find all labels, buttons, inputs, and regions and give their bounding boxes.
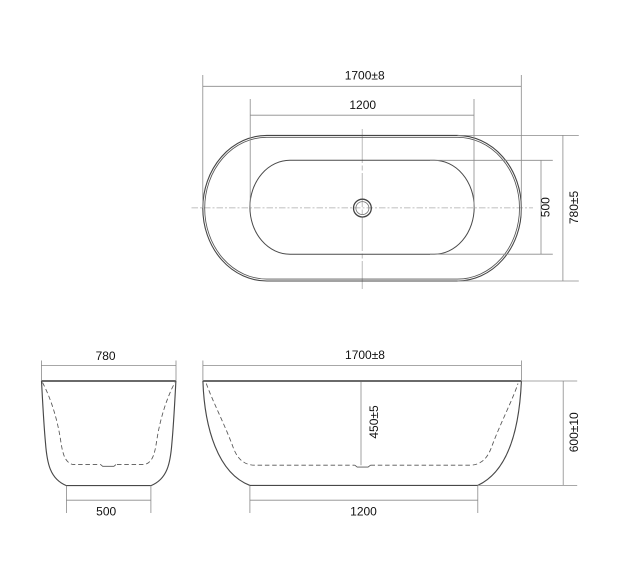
- svg-text:450±5: 450±5: [367, 405, 381, 439]
- svg-text:600±10: 600±10: [567, 412, 581, 452]
- svg-text:500: 500: [96, 504, 116, 518]
- svg-text:780±5: 780±5: [567, 191, 581, 225]
- svg-text:1700±8: 1700±8: [345, 348, 385, 362]
- svg-text:1700±8: 1700±8: [345, 68, 385, 82]
- svg-text:1200: 1200: [349, 98, 376, 112]
- svg-text:1200: 1200: [350, 504, 377, 518]
- svg-text:780: 780: [96, 349, 116, 363]
- svg-text:500: 500: [539, 197, 553, 217]
